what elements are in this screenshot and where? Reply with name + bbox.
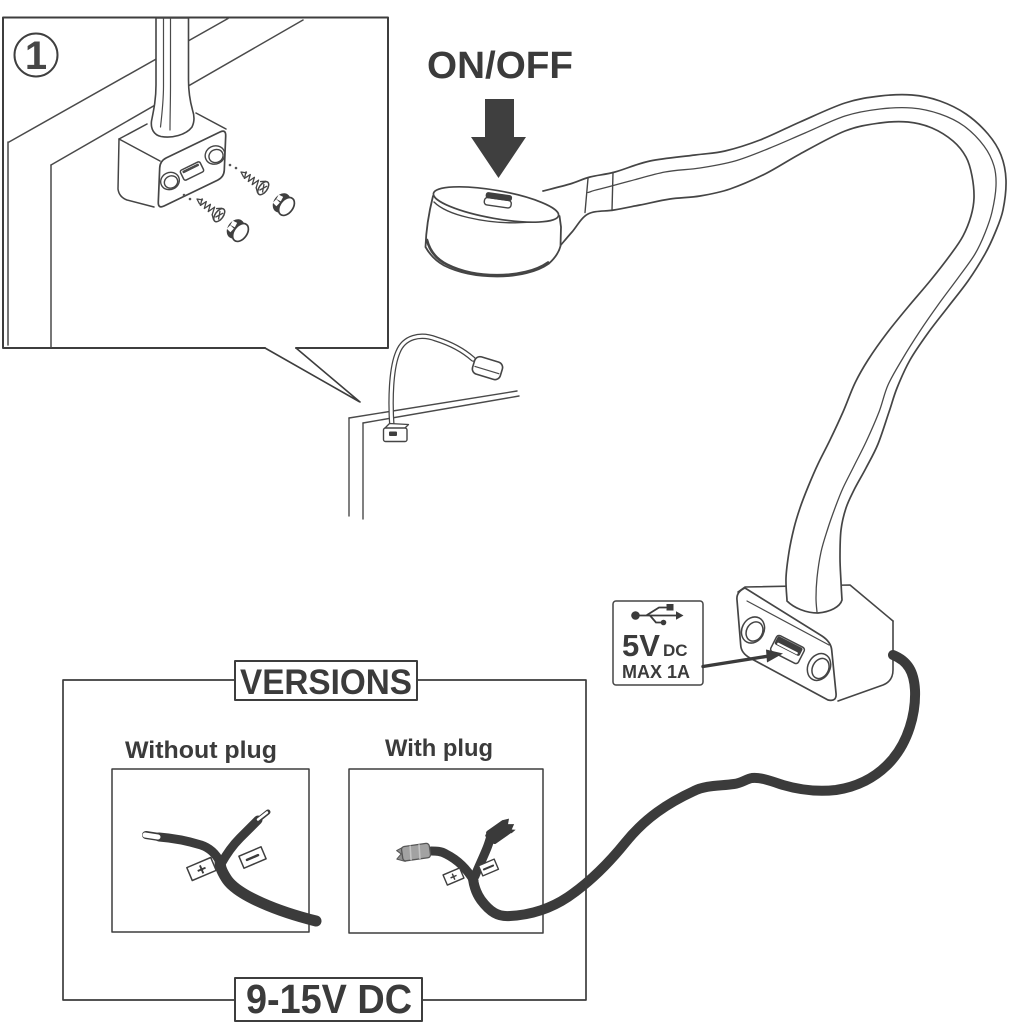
svg-text:ON/OFF: ON/OFF [427, 45, 573, 87]
svg-text:5V: 5V [622, 628, 660, 663]
svg-text:9-15V DC: 9-15V DC [246, 976, 412, 1022]
svg-text:MAX 1A: MAX 1A [622, 661, 690, 682]
svg-text:DC: DC [663, 641, 688, 660]
svg-text:With plug: With plug [385, 735, 493, 762]
svg-text:Without plug: Without plug [125, 737, 277, 764]
svg-text:1: 1 [25, 34, 47, 78]
svg-text:VERSIONS: VERSIONS [240, 663, 412, 702]
